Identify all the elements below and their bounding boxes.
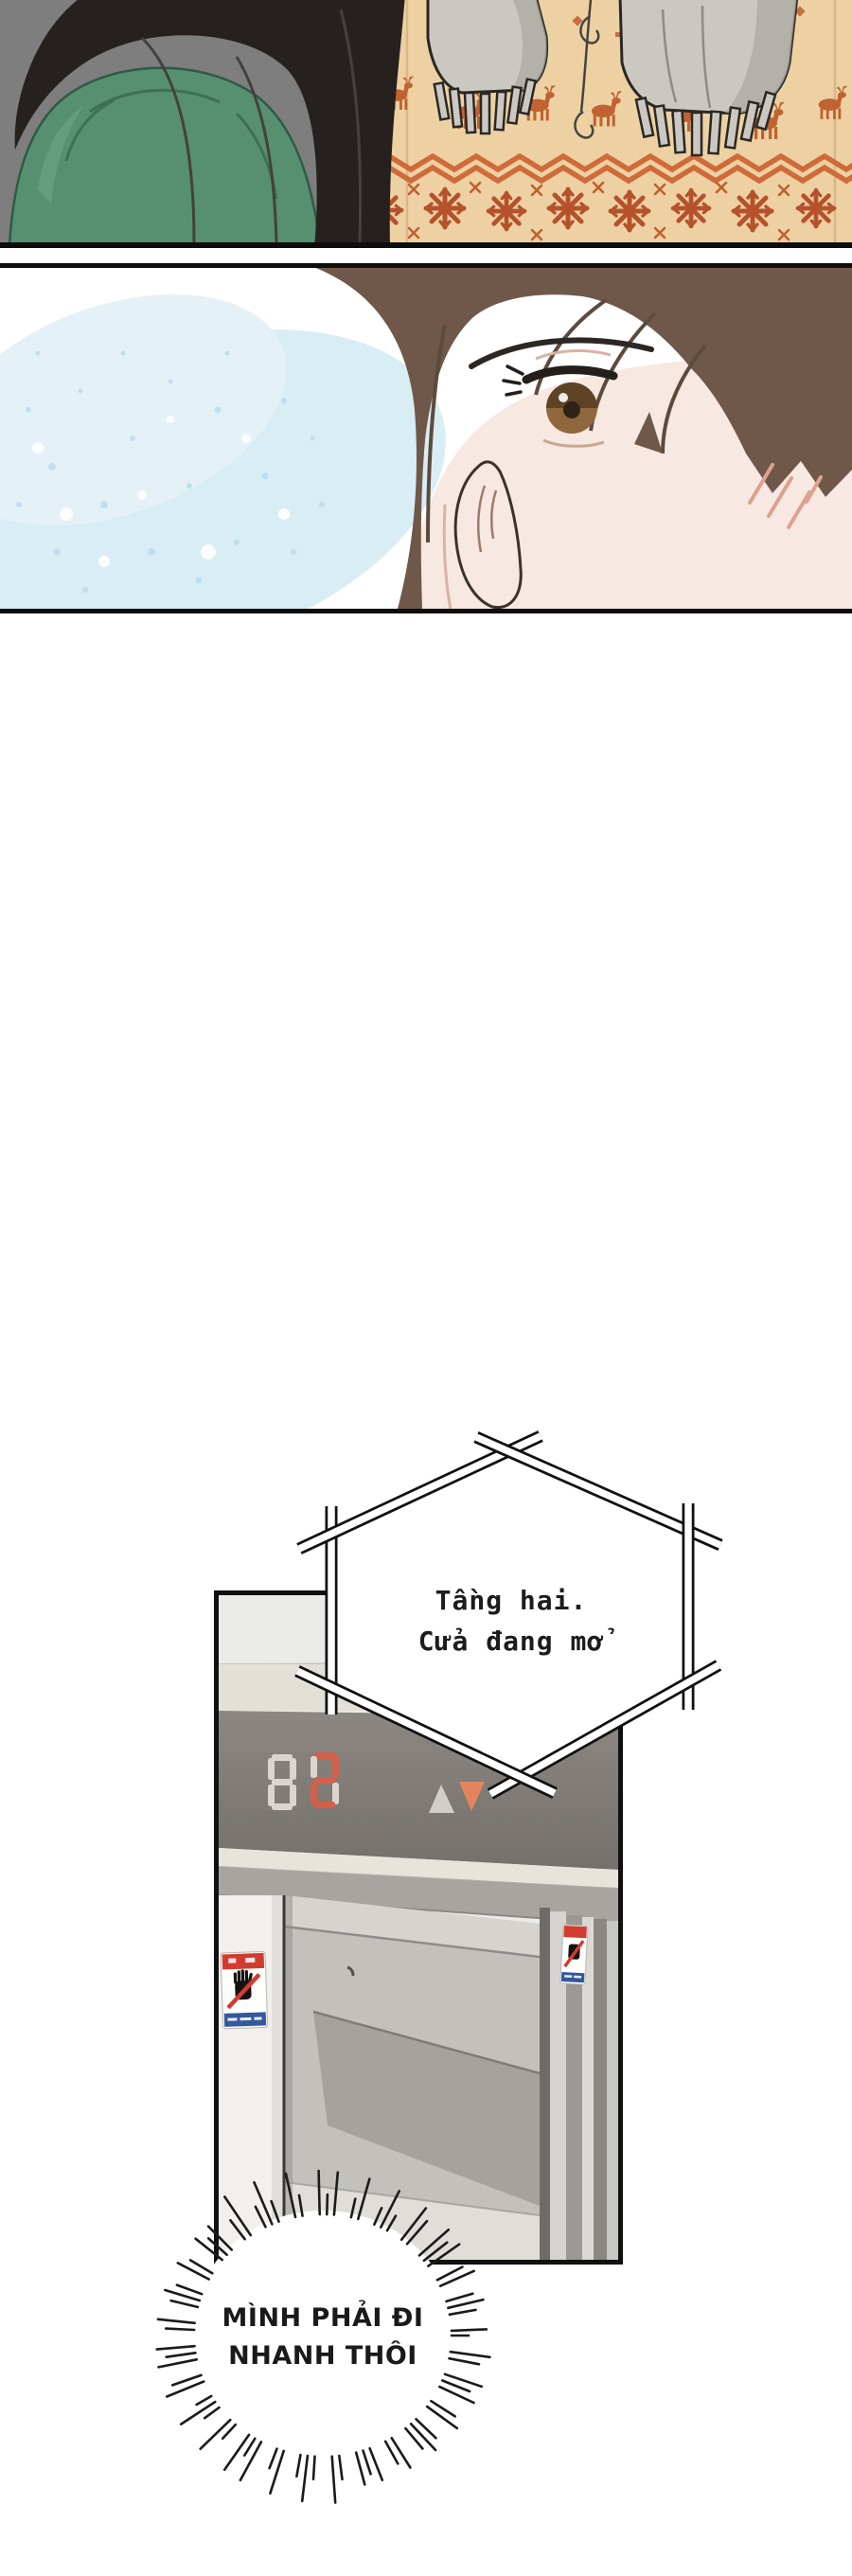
elevator-left-door bbox=[219, 1895, 285, 2260]
panel-face-closeup bbox=[0, 268, 852, 609]
elevator-trim bbox=[219, 1664, 618, 1711]
face-panel-bottom-border bbox=[0, 609, 852, 613]
elevator-wall bbox=[219, 1595, 618, 1664]
street-scene-art bbox=[0, 0, 852, 242]
face-closeup-art bbox=[0, 268, 852, 609]
scarf-left-end bbox=[428, 0, 547, 133]
urgent-thought-line-1: MÌNH PHẢI ĐI bbox=[222, 2300, 424, 2333]
elevator-doorway bbox=[285, 1895, 540, 2260]
webtoon-page: Tầng hai. Cửa đang mở MÌNH PHẢI ĐI NHANH… bbox=[0, 0, 852, 2576]
no-touch-sticker-right bbox=[560, 1925, 588, 1984]
display-band bbox=[219, 1711, 618, 1870]
urgent-thought-line-2: NHANH THÔI bbox=[228, 2340, 417, 2371]
elevator-art bbox=[219, 1595, 618, 2260]
sweater-figure bbox=[365, 0, 852, 242]
panel-street-scene bbox=[0, 0, 852, 242]
panel-divider bbox=[0, 242, 852, 248]
no-touch-sticker-left bbox=[221, 1951, 268, 2029]
panel-elevator bbox=[214, 1590, 623, 2265]
